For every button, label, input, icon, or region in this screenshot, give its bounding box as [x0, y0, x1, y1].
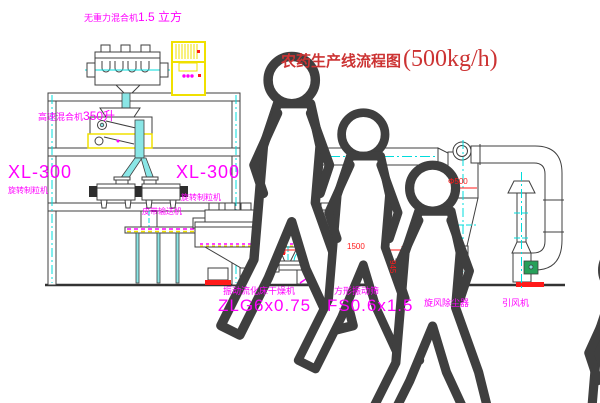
- dimension-screen-width: 1500: [347, 243, 365, 251]
- control-cabinet-top: [172, 42, 205, 95]
- label-dryer-model: ZLG6x0.75: [218, 297, 311, 314]
- label-gravity-mixer: 无重力混合机1.5 立方: [84, 11, 182, 23]
- process-flow-drawing: 农药生产线流程图 (500kg/h) 无重力混合机1.5 立方 高速混合机350…: [0, 0, 600, 403]
- y-chute: [120, 158, 154, 179]
- label-granulator-left-model: XL-300: [8, 163, 72, 181]
- label-granulator-right-model: XL-300: [176, 163, 240, 181]
- label-screen-model: FS0.6x1.5: [327, 297, 414, 314]
- label-draft-fan: 引风机: [502, 299, 529, 308]
- dimension-cyclone-diameter: Φ500: [448, 178, 468, 186]
- label-dryer-name: 振动流化床干燥机: [223, 287, 295, 296]
- label-high-speed-mixer: 高速混合机350升: [38, 110, 115, 122]
- dimension-screen-height: 945: [388, 260, 396, 273]
- label-cyclone: 旋风除尘器: [424, 299, 469, 308]
- label-belt-conveyor: 皮带输送机: [142, 208, 182, 216]
- belt-conveyor: [125, 227, 200, 283]
- title-text: 农药生产线流程图: [281, 50, 401, 71]
- title-capacity: (500kg/h): [403, 46, 498, 73]
- label-screen-name: 方形振动筛: [334, 287, 379, 296]
- person-figures: [221, 56, 600, 403]
- person-figure: [557, 247, 600, 403]
- label-granulator-right-name: 旋转制粒机: [181, 194, 221, 202]
- drawing-title: 农药生产线流程图 (500kg/h): [281, 46, 498, 73]
- label-granulator-left-name: 旋转制粒机: [8, 187, 48, 195]
